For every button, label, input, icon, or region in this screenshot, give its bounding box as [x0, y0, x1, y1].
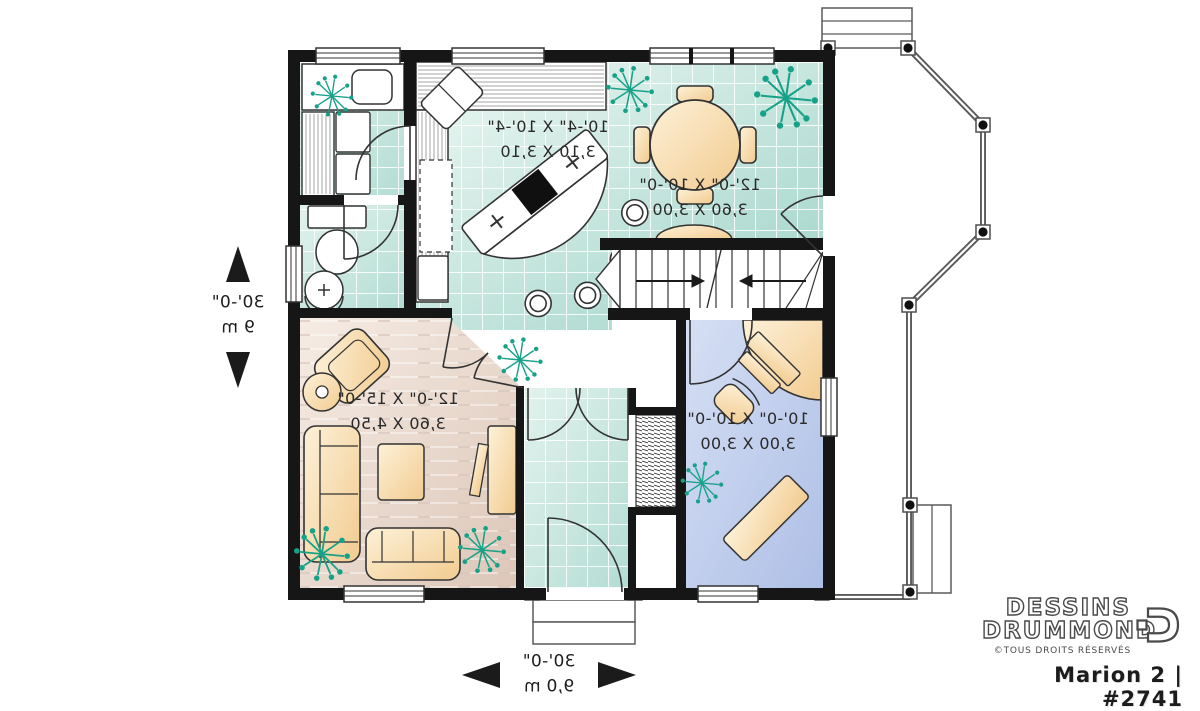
dimension-bottom: 30'-0" 9,0 m	[523, 649, 576, 698]
room-label-kitchen: 10'-4" X 10'-4" 3,10 X 3,10	[487, 115, 609, 165]
room-label-office: 10'-0" X 10'-0" 3,00 X 3,00	[687, 407, 809, 457]
kitchen-metric: 3,10 X 3,10	[487, 140, 609, 165]
washer	[336, 112, 370, 152]
refrigerator	[418, 256, 448, 300]
kitchen-imperial: 10'-4" X 10'-4"	[487, 115, 609, 140]
bottom-feet: 30'-0"	[523, 649, 576, 674]
window	[344, 586, 424, 602]
window	[286, 246, 302, 302]
window	[316, 48, 400, 64]
plan-title: Marion 2 | #2741	[982, 663, 1187, 711]
living-metric: 3,60 X 4,50	[337, 412, 459, 437]
sofa	[304, 426, 360, 562]
office-metric: 3,00 X 3,00	[687, 432, 809, 457]
dishwasher-dashed	[420, 160, 452, 252]
dimension-arrow-left	[462, 662, 500, 688]
left-feet: 30'-0"	[212, 290, 265, 315]
closet	[636, 415, 676, 507]
floor-plan-page: 10'-4" X 10'-4" 3,10 X 3,10 12'-0" X 10'…	[0, 0, 1200, 711]
window-triple	[650, 48, 774, 64]
toilet-tank	[308, 206, 366, 228]
office-imperial: 10'-0" X 10'-0"	[687, 407, 809, 432]
laundry-sink	[352, 70, 392, 104]
branding-block: DESSINS DRUMMOND ©TOUS DROITS RÉSERVÉS M…	[982, 597, 1187, 711]
drummond-logo-icon	[1133, 599, 1181, 651]
dining-metric: 3,60 X 3,00	[639, 198, 761, 223]
porch-side-steps	[913, 505, 951, 593]
window	[452, 48, 544, 64]
bottom-meters: 9,0 m	[523, 674, 576, 699]
window	[698, 586, 758, 602]
dimension-arrow-right	[598, 662, 636, 688]
room-label-living: 12'-0" X 15'-0" 3,60 X 4,50	[337, 387, 459, 437]
porch-entry-steps	[533, 600, 635, 644]
dimension-left: 30'-0" 9 m	[212, 290, 265, 339]
foyer-floor	[524, 388, 628, 588]
dimension-arrow-up	[226, 246, 250, 282]
living-imperial: 12'-0" X 15'-0"	[337, 387, 459, 412]
dimension-arrow-down	[226, 352, 250, 388]
window	[821, 378, 837, 436]
loveseat	[366, 528, 460, 580]
dining-imperial: 12'-0" X 10'-0"	[639, 173, 761, 198]
toilet-bowl	[316, 230, 358, 274]
dryer	[336, 154, 370, 194]
left-meters: 9 m	[212, 315, 265, 340]
coffee-table	[378, 444, 424, 500]
room-label-dining: 12'-0" X 10'-0" 3,60 X 3,00	[639, 173, 761, 223]
staircase	[596, 246, 823, 312]
